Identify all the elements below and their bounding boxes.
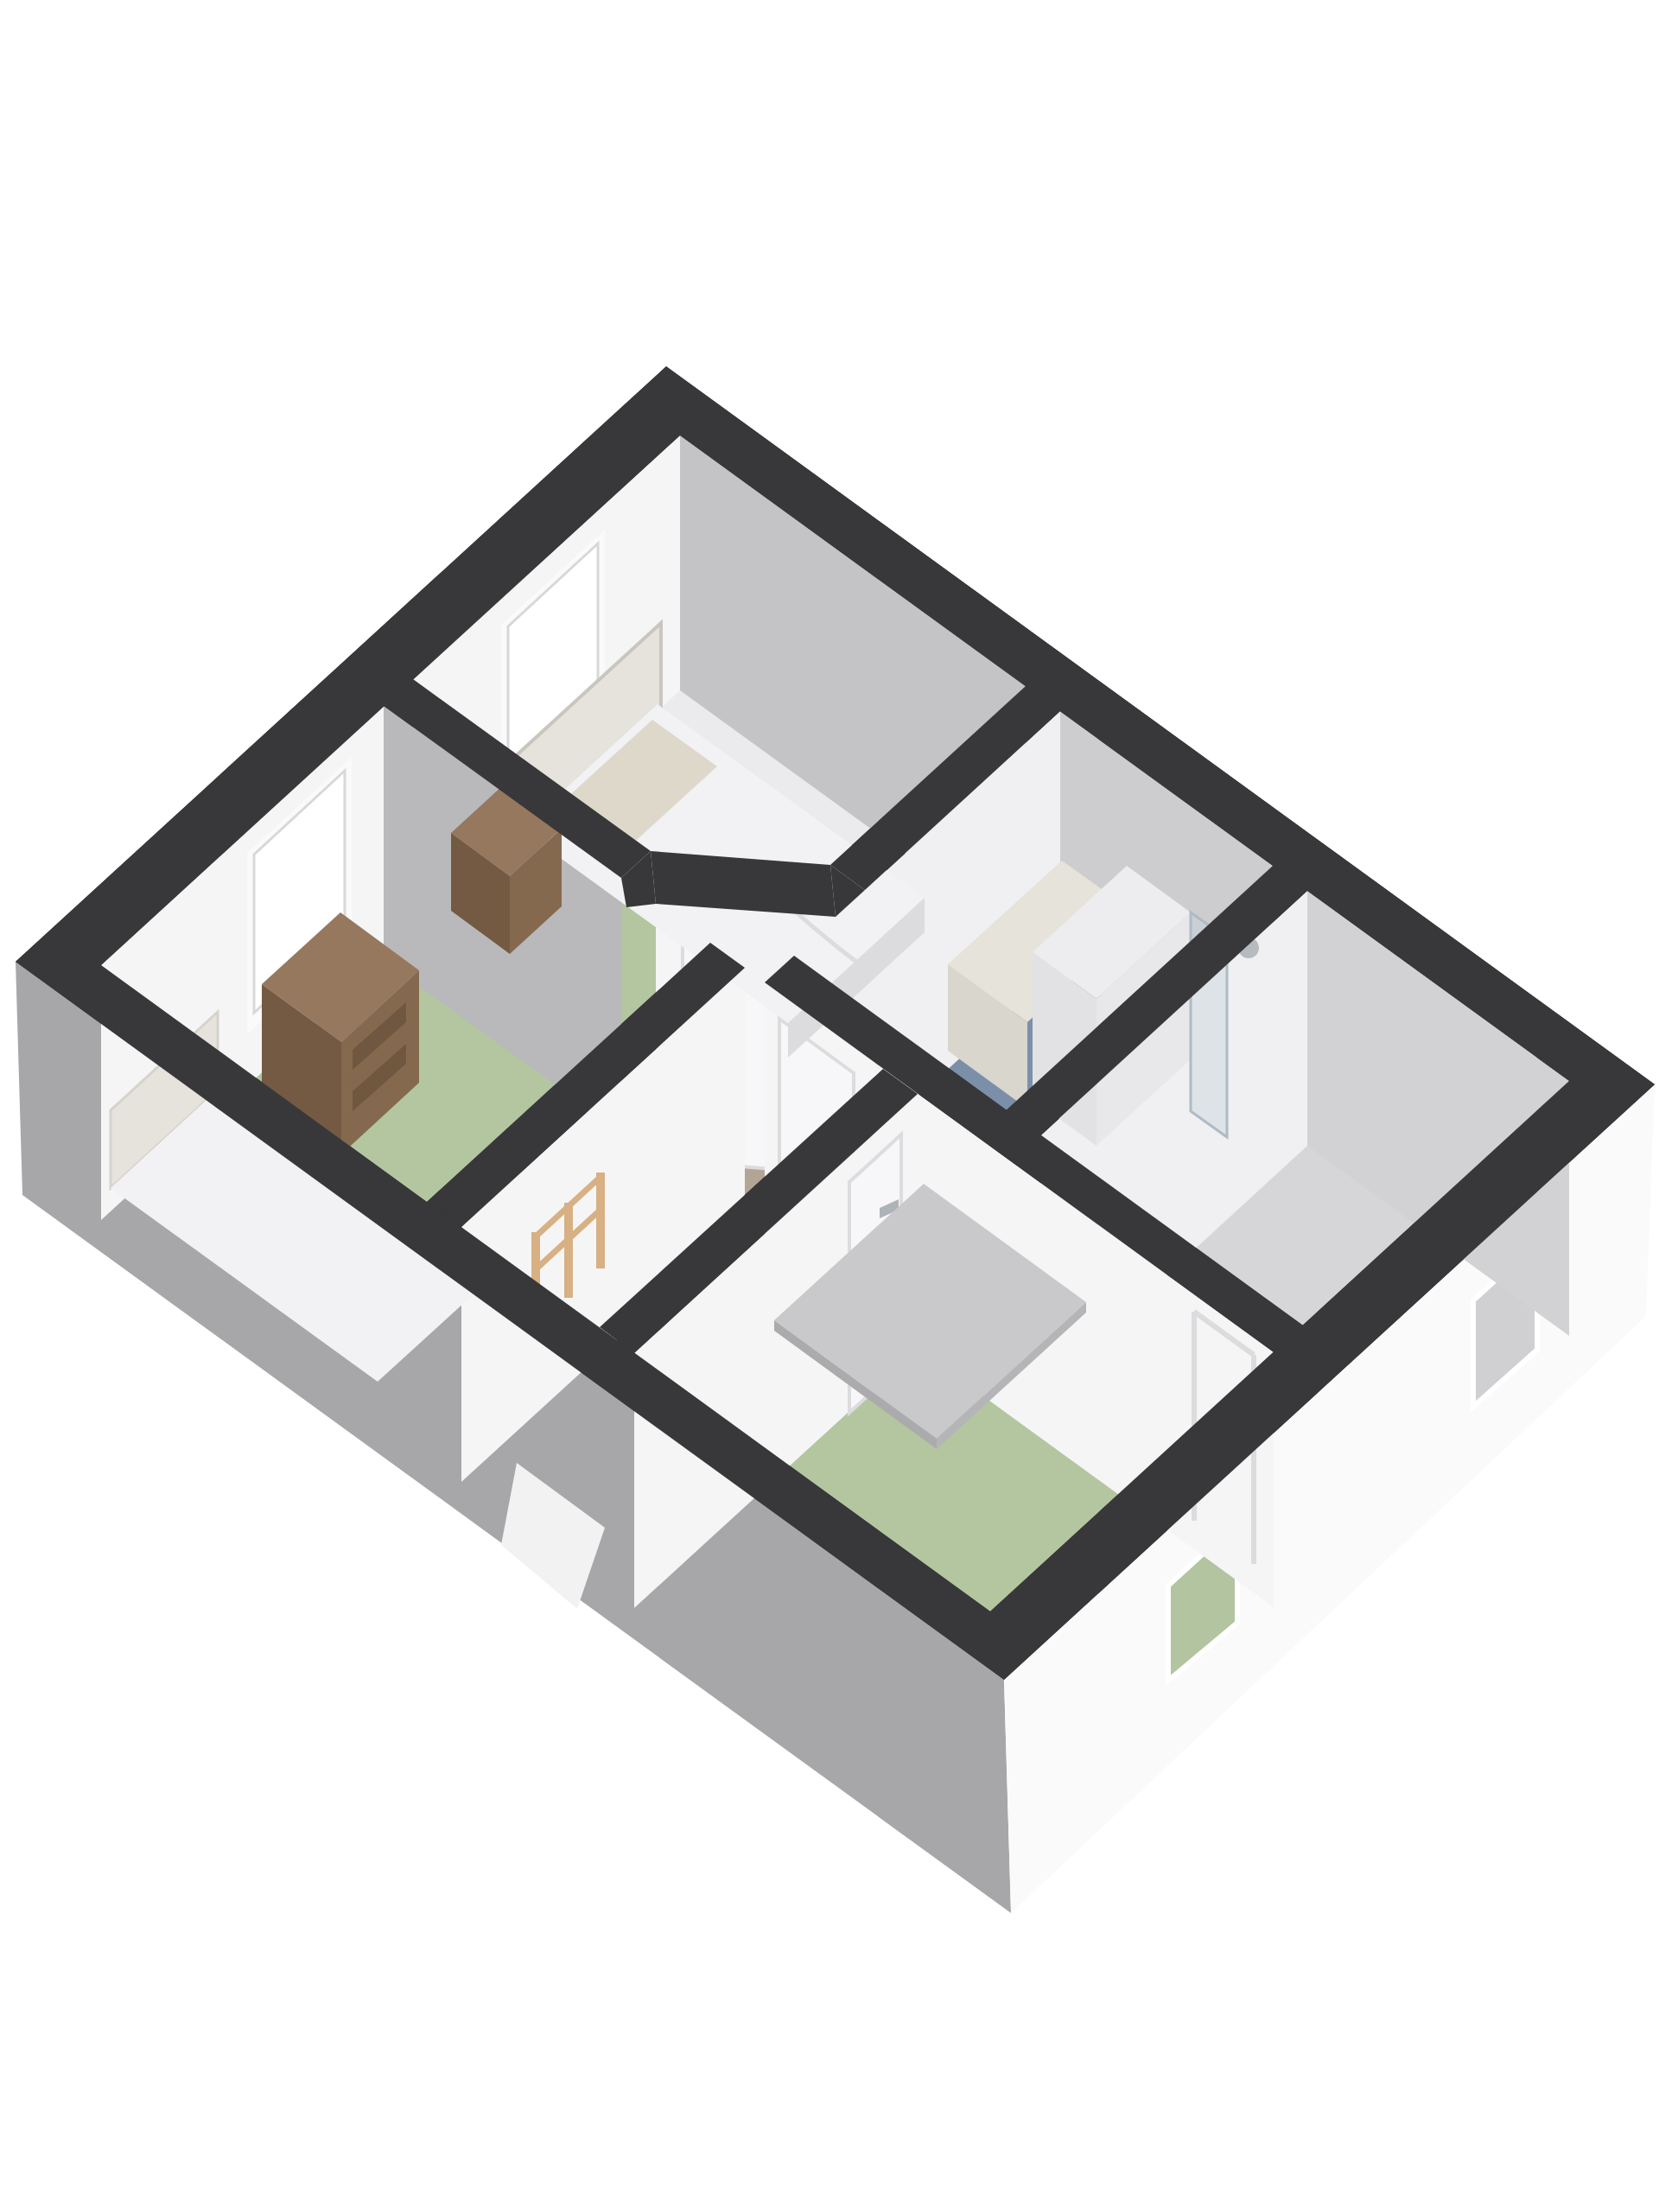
floor-plan-page [0,0,1659,2212]
floor-plan-3d [0,0,1659,2212]
